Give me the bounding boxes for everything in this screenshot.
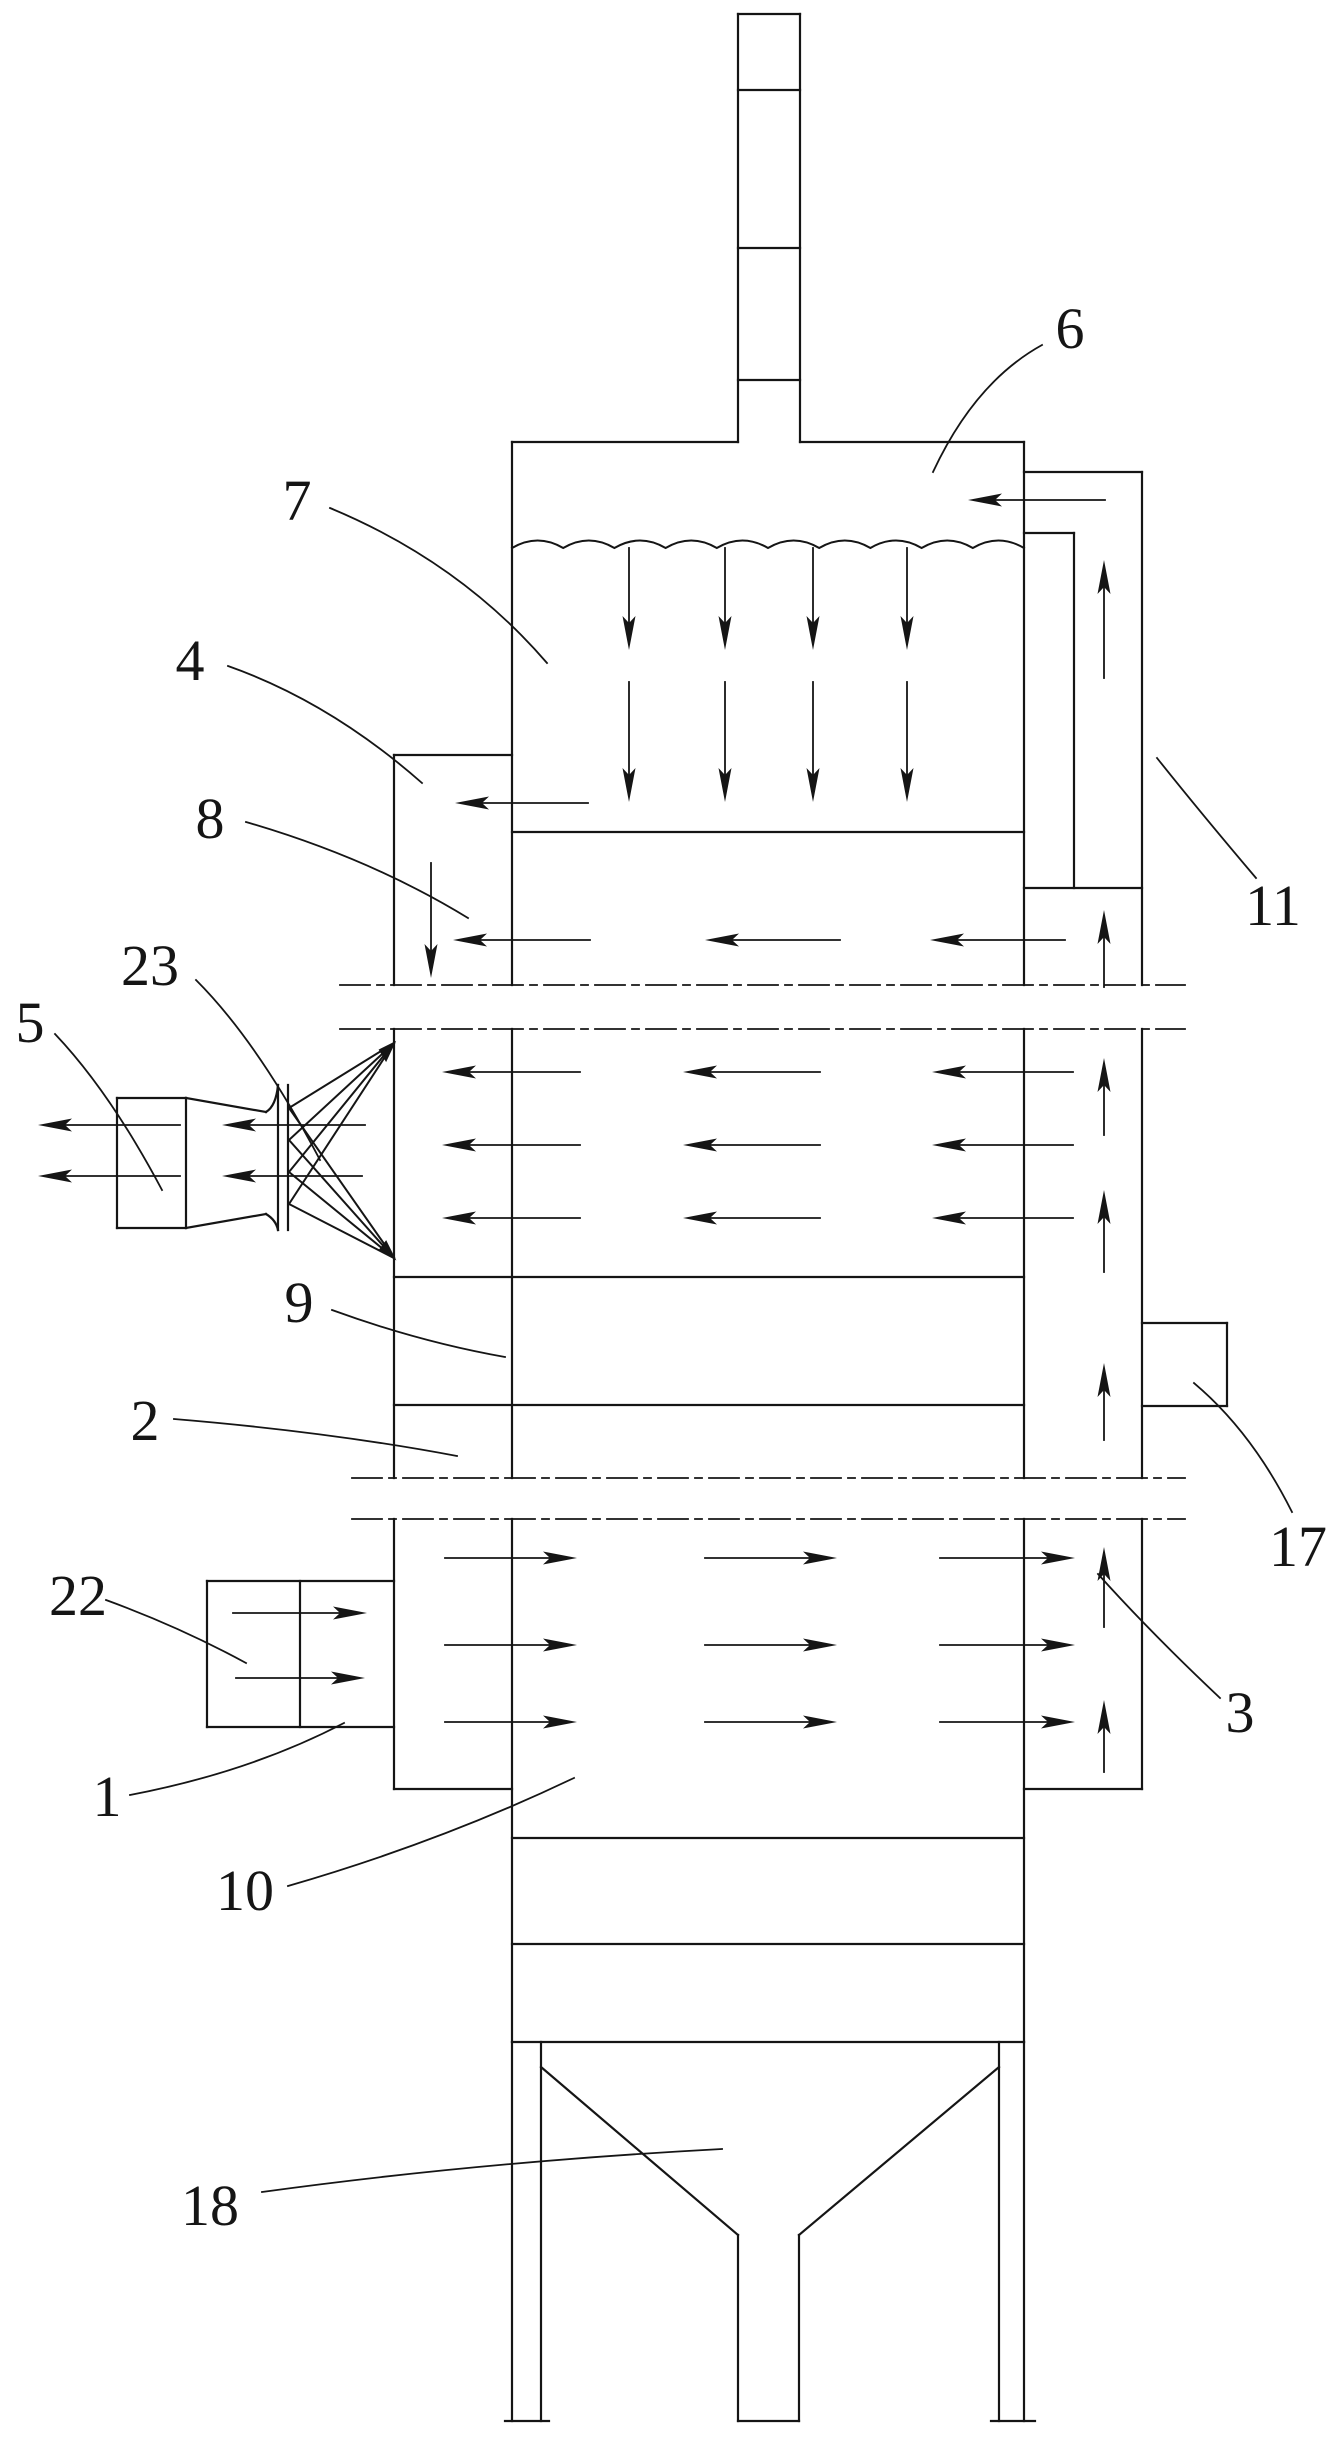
leader-18	[262, 2149, 722, 2192]
leader-6	[933, 345, 1042, 472]
spray-fan-lines	[289, 1043, 394, 1258]
patent-diagram: 674823511921722110183	[0, 0, 1341, 2438]
drawing-canvas: 674823511921722110183	[0, 0, 1341, 2438]
structure-line	[541, 2067, 738, 2235]
throat-flare-bottom	[266, 1214, 278, 1230]
ref-label-10: 10	[216, 1858, 274, 1923]
leader-10	[288, 1778, 574, 1886]
fan-line	[289, 1204, 394, 1258]
ref-label-23: 23	[121, 933, 179, 998]
spray-tower-top-section	[512, 442, 1024, 985]
leader-8	[246, 822, 468, 918]
support-legs	[505, 2042, 1035, 2421]
side-box-4	[394, 755, 512, 985]
ref-label-1: 1	[93, 1764, 122, 1829]
leader-7	[330, 508, 547, 663]
ref-label-18: 18	[181, 2173, 239, 2238]
liquid-surface	[512, 541, 1024, 549]
leader-22	[106, 1600, 246, 1663]
fan-line	[289, 1043, 394, 1108]
section-break-lines	[340, 985, 1185, 1519]
fan-line	[289, 1043, 394, 1204]
ref-label-22: 22	[49, 1563, 107, 1628]
liquid-wave-line	[512, 541, 1024, 549]
fan-line	[289, 1172, 394, 1258]
ref-label-4: 4	[176, 628, 205, 693]
leader-17	[1194, 1383, 1292, 1512]
middle-section	[394, 1029, 1024, 1478]
throat-flare-top	[266, 1085, 278, 1112]
ref-label-2: 2	[131, 1388, 160, 1453]
leader-2	[174, 1419, 457, 1456]
fan-line	[289, 1043, 394, 1172]
structure-line	[186, 1214, 266, 1228]
reference-labels: 674823511921722110183	[16, 296, 1328, 2238]
ref-label-7: 7	[283, 468, 312, 533]
leader-3	[1098, 1574, 1220, 1698]
nozzle-assembly	[117, 1085, 288, 1230]
right-riser-duct	[1024, 472, 1142, 1789]
ref-label-5: 5	[16, 990, 45, 1055]
side-box-17	[1142, 1323, 1227, 1406]
nozzle-throat	[266, 1085, 278, 1230]
leader-1	[130, 1723, 344, 1795]
ref-label-3: 3	[1226, 1680, 1255, 1745]
structure-line	[186, 1098, 266, 1112]
discharge-hopper	[541, 2067, 999, 2421]
leader-11	[1157, 758, 1256, 878]
leader-23	[196, 980, 320, 1160]
fan-line	[289, 1140, 394, 1258]
leader-5	[55, 1034, 162, 1190]
leader-9	[332, 1310, 505, 1357]
inlet-box-22	[207, 1581, 394, 1727]
ref-label-8: 8	[196, 786, 225, 851]
ref-label-11: 11	[1245, 873, 1301, 938]
ref-label-17: 17	[1269, 1514, 1327, 1579]
ref-label-6: 6	[1056, 296, 1085, 361]
structure-line	[799, 2067, 999, 2235]
bottom-section	[394, 1519, 1024, 2042]
chimney	[738, 14, 800, 442]
ref-label-9: 9	[285, 1270, 314, 1335]
